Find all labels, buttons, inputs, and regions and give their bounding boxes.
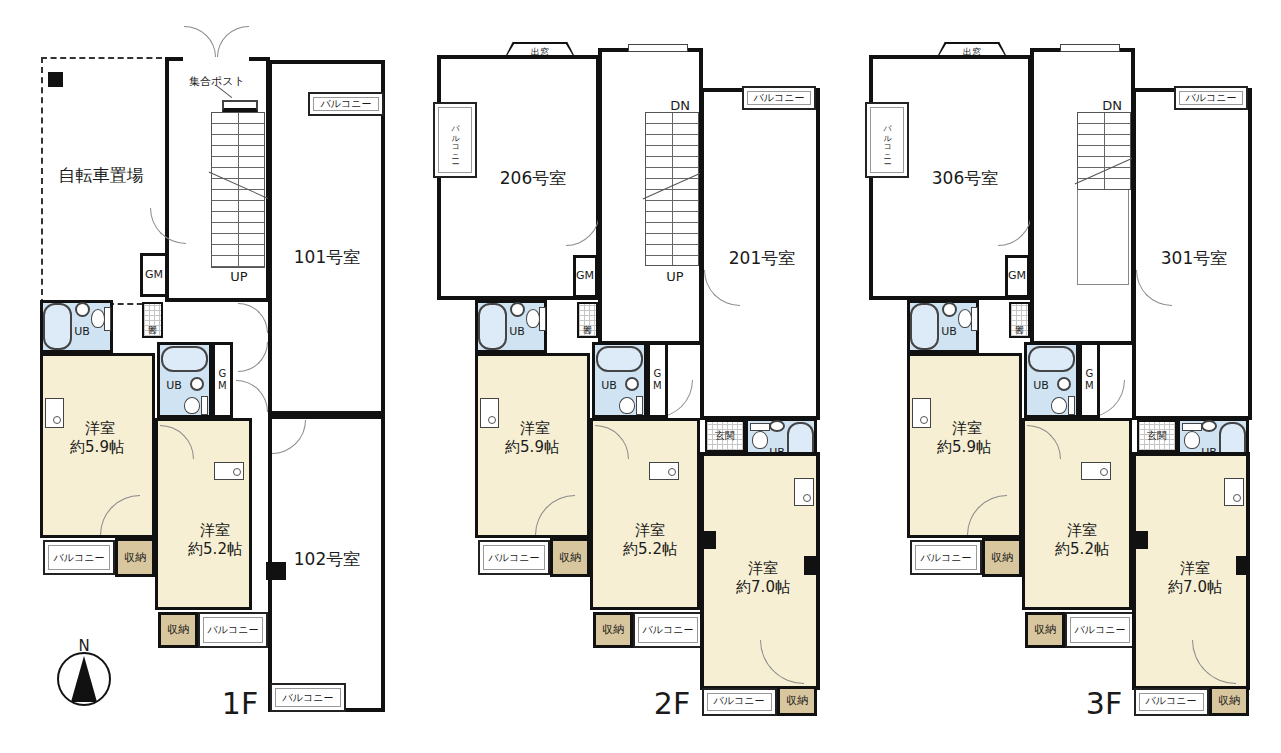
room-5-9-size: 約5.9帖 [70,439,124,456]
kitchen-sink-icon [794,478,814,506]
balcony-label: バルコニー [1186,92,1237,104]
toilet-icon [526,309,540,328]
door-arc-icon [236,380,268,412]
room-5-2-name: 洋室 [635,522,665,539]
gm-label: GM [1008,270,1026,283]
storage-label: 収納 [124,552,146,565]
room-7-0-size: 約7.0帖 [736,579,790,596]
floor-label-2f: 2F [654,687,690,722]
toilet-icon [1184,431,1200,449]
room-5-2-size: 約5.2帖 [1055,541,1109,558]
gm-label: GM [1083,368,1095,392]
room-5-9-name: 洋室 [520,420,550,437]
balcony-label: バルコニー [921,552,972,564]
ub-label: UB [1033,380,1049,393]
stairs-dn-label: DN [1102,99,1122,114]
stair-landing-rail [1077,190,1129,285]
balcony-label: バルコニー [208,624,259,636]
toilet-tank-icon [1068,396,1075,415]
room-5-9-name: 洋室 [952,420,982,437]
kitchen-sink-icon [45,398,64,428]
balcony-label: バルコニー [283,692,334,704]
stairs-1f [211,112,265,268]
storage-label: 収納 [1034,624,1056,637]
balcony-label: バルコニー [754,92,805,104]
toilet-tank-icon [636,396,643,415]
toilet-icon [184,397,200,414]
pillar [48,72,63,87]
storage-label: 収納 [167,624,189,637]
room-206-label: 206号室 [500,169,566,189]
room-306-label: 306号室 [932,169,998,189]
stairs-2f [645,112,699,266]
room-7-0-size: 約7.0帖 [1168,579,1222,596]
washbasin-icon [1057,377,1071,391]
bicycle-parking-label: 自転車置場 [59,166,144,186]
kitchen-sink-icon [1224,478,1244,506]
room-5-2-size: 約5.2帖 [188,541,242,558]
kitchen-sink-icon [912,398,931,428]
room-7-0-name: 洋室 [748,560,778,577]
balcony-label: バルコニー [643,624,694,636]
washbasin-icon [510,302,525,317]
pillar [1132,531,1148,549]
kitchen-sink-icon [214,462,244,480]
gm-label: GM [145,269,163,282]
toilet-icon [91,309,105,328]
door-arc-icon [184,26,216,57]
toilet-icon [958,309,972,328]
storage-label: 収納 [786,695,808,708]
room-5-2-name: 洋室 [1067,522,1097,539]
gm-label: GM [576,270,594,283]
balcony-label: バルコニー [1075,624,1126,636]
ub-label: UB [601,380,617,393]
window [1060,44,1120,52]
floorplan-canvas: 自転車置場 集合ポスト UP バルコニー 101号室 GM UB [0,0,1281,753]
genkan-label: 玄関 [147,319,156,321]
stairs-up-label: UP [230,270,247,285]
bathtub-icon [478,303,507,350]
storage-label: 収納 [602,624,624,637]
floor-label-1f: 1F [222,687,258,722]
washbasin-icon [190,377,204,391]
ub-label: UB [166,380,182,393]
room-5-2-size: 約5.2帖 [623,541,677,558]
compass-needle-icon [71,656,97,702]
room-5-9-name: 洋室 [85,420,115,437]
toilet-icon [752,431,768,449]
balcony-label: バルコニー [489,552,540,564]
stairs-dn-label: DN [670,99,690,114]
bathtub-icon [43,303,72,350]
genkan-label: 玄関 [715,430,735,442]
window [628,44,688,52]
room-301-label: 301号室 [1161,249,1227,269]
balcony-label: バルコニー [450,119,459,160]
balcony-label: バルコニー [1146,695,1197,707]
pillar [700,531,716,549]
balcony-label: バルコニー [321,98,372,110]
pillar [1236,556,1250,575]
room-5-9-size: 約5.9帖 [937,439,991,456]
room-7-0-name: 洋室 [1180,560,1210,577]
washbasin-icon [75,302,90,317]
room-5-9-size: 約5.9帖 [505,439,559,456]
bathtub-icon [1028,346,1075,372]
storage-label: 収納 [1218,695,1240,708]
storage-label: 収納 [991,552,1013,565]
toilet-tank-icon [539,307,546,331]
room-101-label: 101号室 [294,248,360,268]
bathtub-icon [910,303,939,350]
washbasin-icon [942,302,957,317]
kitchen-sink-icon [649,462,679,480]
toilet-tank-icon [201,396,208,415]
genkan-label: 玄関 [582,319,591,321]
floor-label-3f: 3F [1086,687,1122,722]
toilet-tank-icon [1182,423,1202,431]
balcony-label: バルコニー [882,119,891,160]
door-arc-icon [238,303,268,333]
room-5-2-name: 洋室 [200,522,230,539]
genkan-label: 玄関 [1014,319,1023,321]
stairs-up-label: UP [666,270,683,285]
bathtub-icon [161,346,208,372]
room-201-label: 201号室 [729,249,795,269]
balcony-label: バルコニー [714,695,765,707]
genkan-label: 玄関 [1147,430,1167,442]
pillar [804,556,818,575]
washbasin-icon [625,377,639,391]
door-arc-icon [217,26,249,57]
gm-label: GM [651,368,663,392]
kitchen-sink-icon [1081,462,1111,480]
ub-label: UB [941,326,957,339]
door-arc-icon [238,342,268,372]
toilet-icon [619,397,635,414]
washbasin-icon [1201,420,1217,432]
ub-label: UB [74,326,90,339]
toilet-tank-icon [104,307,111,331]
ub-label: UB [509,326,525,339]
gm-label: GM [216,368,228,392]
toilet-icon [1051,397,1067,414]
toilet-tank-icon [750,423,770,431]
washbasin-icon [769,420,785,432]
room-102-label: 102号室 [294,550,360,570]
storage-label: 収納 [559,552,581,565]
kitchen-sink-icon [480,398,499,428]
pillar [266,562,286,580]
balcony-label: バルコニー [54,552,105,564]
toilet-tank-icon [971,307,978,331]
bathtub-icon [596,346,643,372]
